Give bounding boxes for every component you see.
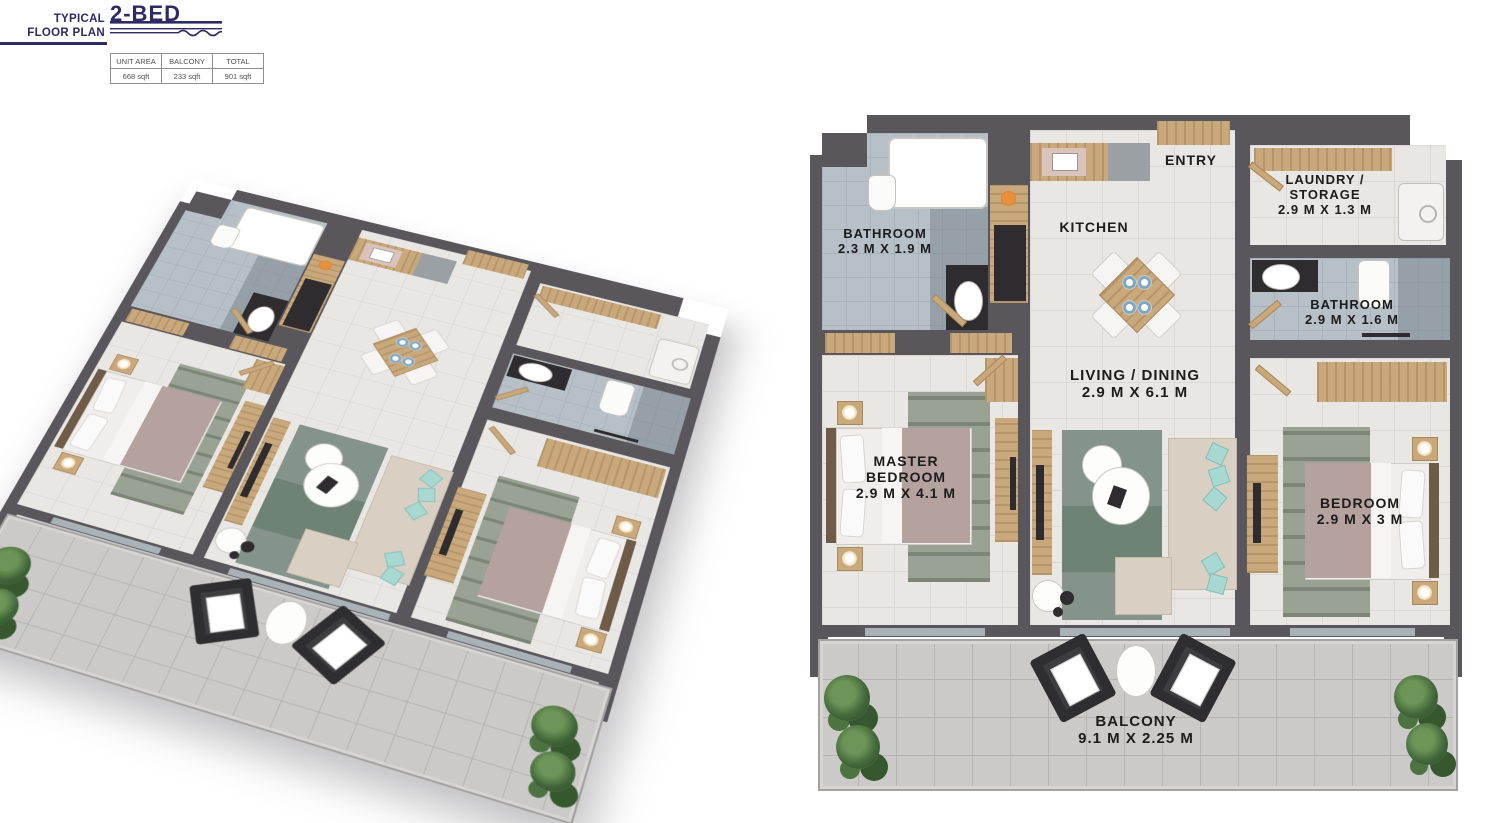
bedroom-dims: 2.9 M X 3 M (1317, 511, 1403, 527)
floor-plan-2d: BATHROOM 2.3 M X 1.9 M KITCHEN ENTRY (810, 115, 1462, 805)
bathroom-1-wall-step (822, 133, 867, 167)
sofa-back (1168, 438, 1237, 590)
plate-2 (1137, 275, 1152, 290)
bedroom-pillow-2 (1398, 520, 1425, 570)
area-table-val-total: 901 sqft (213, 69, 264, 84)
master-name-line1: MASTER (873, 453, 938, 469)
plant-left-2 (836, 725, 880, 769)
laundry-name-line2: STORAGE (1289, 187, 1360, 202)
master-nightstand-top (837, 401, 863, 425)
label-balcony: BALCONY 9.1 M X 2.25 M (1056, 713, 1216, 748)
isometric-floor-plan-3d (30, 118, 682, 808)
kitchen-name: KITCHEN (1059, 219, 1128, 235)
eyebrow-title: TYPICAL FLOOR PLAN (0, 12, 105, 41)
area-table: UNIT AREA BALCONY TOTAL 668 sqft 233 sqf… (110, 53, 264, 84)
sink-bathroom-2 (1262, 264, 1300, 290)
title-underline-wave (110, 21, 222, 37)
kitchen-sink (1052, 153, 1078, 171)
bathroom-1-name: BATHROOM (843, 226, 927, 241)
master-tv (1010, 457, 1016, 510)
bedroom-dresser (1247, 455, 1278, 573)
plate-1 (1122, 275, 1137, 290)
laundry-dims: 2.9 M X 1.3 M (1278, 202, 1372, 217)
balcony-name: BALCONY (1095, 713, 1176, 730)
living-dining-dims: 2.9 M X 6.1 M (1082, 384, 1188, 401)
tv-screen-living (1036, 465, 1044, 540)
area-table-col-total: TOTAL (213, 54, 264, 69)
laundry-shelf (1254, 148, 1392, 171)
master-nightstand-bottom (837, 547, 863, 571)
label-kitchen: KITCHEN (1036, 219, 1152, 235)
bathroom-2-name: BATHROOM (1310, 297, 1394, 312)
area-table-col-balcony: BALCONY (162, 54, 213, 69)
eyebrow-line2: FLOOR PLAN (27, 27, 105, 39)
laundry-name-line1: LAUNDRY / (1285, 172, 1364, 187)
eyebrow-line1: TYPICAL (54, 13, 105, 25)
living-dining-name: LIVING / DINING (1070, 367, 1200, 384)
kitchen-oven (994, 225, 1026, 301)
toilet-bathroom-1 (868, 175, 896, 211)
floor-lamp-foot (1053, 607, 1063, 617)
floor-plan-2d (0, 179, 729, 823)
area-table-val-balcony: 233 sqft (162, 69, 213, 84)
bedroom-desk (1317, 362, 1447, 402)
balcony-dims: 9.1 M X 2.25 M (1078, 730, 1194, 747)
sofa-chaise (1115, 557, 1172, 615)
entry-cabinet (1157, 121, 1230, 145)
lamp-master-bottom (842, 551, 857, 566)
lamp-bedroom-bottom (1417, 585, 1432, 600)
label-entry: ENTRY (1150, 152, 1232, 168)
label-living-dining: LIVING / DINING 2.9 M X 6.1 M (1053, 367, 1217, 402)
bedroom-nightstand-top (1412, 437, 1438, 461)
plate-4 (1137, 300, 1152, 315)
plant-right-2 (1406, 723, 1448, 765)
master-name-line2: BEDROOM (866, 469, 946, 485)
bedroom-bed-headboard (1429, 463, 1439, 578)
bedroom-name: BEDROOM (1320, 495, 1400, 511)
fruit-bowl (1001, 191, 1016, 206)
entry-name: ENTRY (1165, 152, 1217, 168)
master-dims: 2.9 M X 4.1 M (856, 485, 956, 501)
plant-left-1 (824, 675, 870, 721)
label-bedroom: BEDROOM 2.9 M X 3 M (1292, 495, 1428, 527)
bedroom-tv (1253, 483, 1261, 543)
kitchen-fridge (1108, 143, 1150, 181)
floor-lamp-base (1060, 591, 1074, 605)
bathroom-1-dims: 2.3 M X 1.9 M (838, 241, 932, 256)
window-bedroom (1290, 628, 1415, 636)
dressing-desk-right (950, 333, 1012, 353)
area-table-header-row: UNIT AREA BALCONY TOTAL (111, 54, 264, 69)
area-table-col-unit-area: UNIT AREA (111, 54, 162, 69)
plant-right-1 (1394, 675, 1438, 719)
plate-3 (1122, 300, 1137, 315)
label-bathroom-2: BATHROOM 2.9 M X 1.6 M (1282, 298, 1422, 328)
eyebrow-rule (0, 42, 107, 45)
label-bathroom-1: BATHROOM 2.3 M X 1.9 M (825, 227, 945, 257)
bedroom-nightstand-bottom (1412, 581, 1438, 605)
area-table-value-row: 668 sqft 233 sqft 901 sqft (111, 69, 264, 84)
area-table-val-unit-area: 668 sqft (111, 69, 162, 84)
lamp-bedroom-top (1417, 441, 1432, 456)
label-master-bedroom: MASTER BEDROOM 2.9 M X 4.1 M (835, 453, 977, 501)
page-canvas: TYPICAL FLOOR PLAN 2-BED UNIT AREA BALCO… (0, 0, 1500, 823)
washing-machine (1398, 183, 1444, 241)
label-laundry: LAUNDRY / STORAGE 2.9 M X 1.3 M (1258, 173, 1392, 218)
window-master (865, 628, 985, 636)
bathroom-2-dims: 2.9 M X 1.6 M (1305, 312, 1399, 327)
lamp-master-top (842, 405, 857, 420)
balcony-table (1116, 645, 1156, 697)
dressing-desk-left (825, 333, 895, 353)
bathtub (888, 137, 988, 209)
towel-rail (1362, 333, 1410, 337)
